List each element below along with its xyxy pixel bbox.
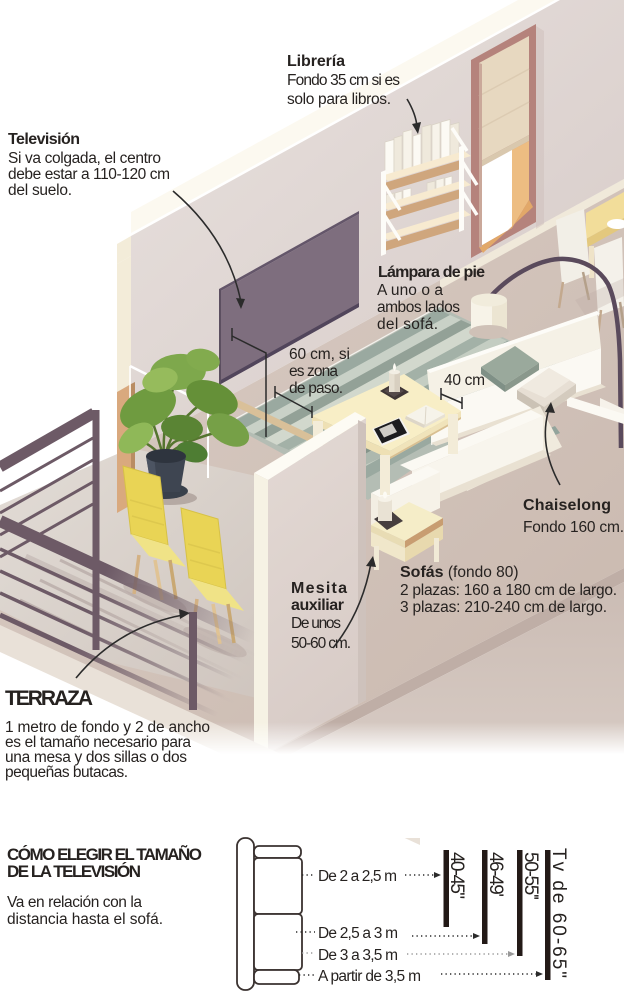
- svg-text:es zona: es zona: [289, 363, 338, 380]
- svg-text:40 cm: 40 cm: [444, 372, 485, 389]
- svg-text:Televisión: Televisión: [8, 131, 80, 148]
- svg-text:De 2,5 a 3 m: De 2,5 a 3 m: [318, 925, 398, 942]
- svg-text:3 plazas: 210-240 cm de largo.: 3 plazas: 210-240 cm de largo.: [400, 599, 607, 616]
- svg-text:TERRAZA: TERRAZA: [5, 687, 93, 710]
- svg-text:distancia hasta el sofá.: distancia hasta el sofá.: [7, 911, 163, 928]
- svg-text:ambos lados: ambos lados: [377, 299, 460, 316]
- svg-text:Librería: Librería: [287, 53, 345, 70]
- svg-text:pequeñas butacas.: pequeñas butacas.: [5, 764, 128, 781]
- svg-text:Fondo 160 cm.: Fondo 160 cm.: [523, 519, 624, 536]
- svg-text:50-55'': 50-55'': [520, 852, 541, 900]
- svg-text:del suelo.: del suelo.: [8, 182, 72, 199]
- svg-text:solo para libros.: solo para libros.: [287, 91, 391, 108]
- svg-text:del sofá.: del sofá.: [377, 316, 438, 333]
- svg-text:De 2 a 2,5 m: De 2 a 2,5 m: [318, 868, 397, 885]
- svg-text:Si va colgada, el centro: Si va colgada, el centro: [8, 150, 161, 167]
- svg-text:DE LA TELEVISIÓN: DE LA TELEVISIÓN: [7, 862, 141, 881]
- svg-text:A uno o a: A uno o a: [377, 282, 443, 299]
- svg-text:Chaiselong: Chaiselong: [523, 497, 611, 514]
- svg-text:Lámpara de pie: Lámpara de pie: [378, 264, 485, 281]
- svg-text:A partir de 3,5 m: A partir de 3,5 m: [318, 968, 421, 985]
- svg-text:De 3 a 3,5 m: De 3 a 3,5 m: [318, 947, 398, 964]
- svg-text:De unos: De unos: [291, 615, 341, 632]
- svg-text:CÓMO ELEGIR EL TAMAÑO: CÓMO ELEGIR EL TAMAÑO: [7, 844, 202, 864]
- svg-text:de paso.: de paso.: [289, 380, 343, 397]
- svg-text:Tv de 60-65": Tv de 60-65": [548, 848, 569, 978]
- svg-text:46-49': 46-49': [485, 852, 506, 897]
- svg-text:2 plazas: 160 a 180 cm de larg: 2 plazas: 160 a 180 cm de largo.: [400, 582, 617, 599]
- svg-text:60 cm, si: 60 cm, si: [289, 346, 350, 363]
- svg-text:Fondo 35 cm si es: Fondo 35 cm si es: [287, 72, 400, 89]
- svg-text:Mesita: Mesita: [291, 580, 347, 597]
- svg-text:auxiliar: auxiliar: [291, 597, 344, 614]
- svg-text:Sofás (fondo 80): Sofás (fondo 80): [400, 564, 519, 581]
- svg-text:Va en relación con la: Va en relación con la: [7, 894, 142, 911]
- svg-text:debe estar a 110-120 cm: debe estar a 110-120 cm: [8, 166, 170, 183]
- svg-text:40-45": 40-45": [446, 852, 467, 899]
- svg-text:50-60 cm.: 50-60 cm.: [291, 635, 351, 652]
